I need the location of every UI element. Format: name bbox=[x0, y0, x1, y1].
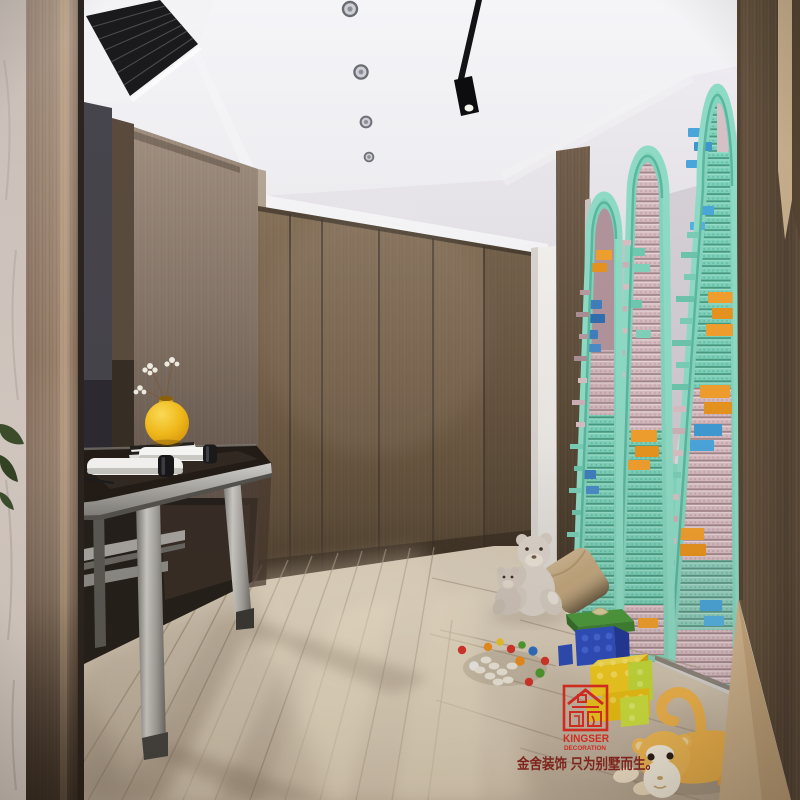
svg-text:金舍装饰 只为别墅而生。: 金舍装饰 只为别墅而生。 bbox=[516, 755, 658, 773]
svg-text:KINGSER: KINGSER bbox=[563, 733, 609, 745]
svg-text:DECORATION: DECORATION bbox=[564, 746, 606, 752]
